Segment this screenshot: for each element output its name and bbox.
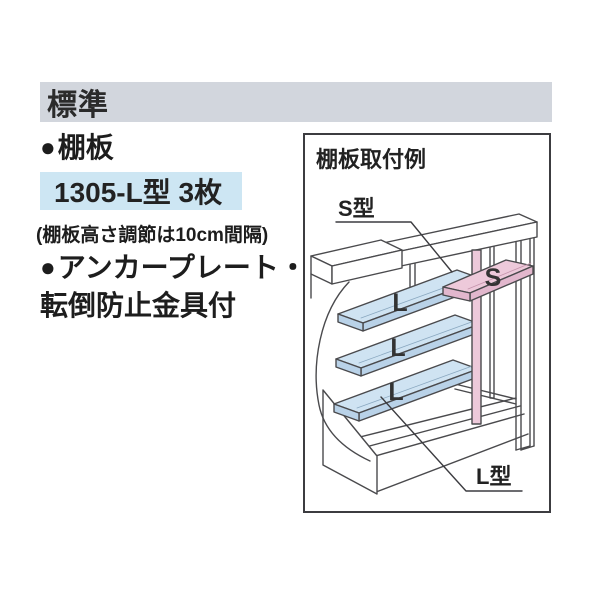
shelf-spec-highlight: 1305-L型 3枚	[40, 172, 242, 210]
shelf-note: (棚板高さ調節は10cm間隔)	[36, 220, 268, 247]
anchor-line1: アンカープレート・	[58, 251, 307, 285]
section-header-bar: 標準	[40, 82, 552, 122]
shelf-title: 棚板	[58, 131, 114, 165]
shelf-spec-line: ● 棚板	[40, 131, 114, 165]
shelf-letter-l3: L	[388, 378, 403, 406]
product-spec-image: 標準 ● 棚板 1305-L型 3枚 (棚板高さ調節は10cm間隔) ● アンカ…	[0, 0, 600, 600]
shelf-letter-l1: L	[392, 289, 407, 317]
bullet-icon: ●	[40, 252, 56, 283]
shelf-spec: 1305-L型 3枚	[40, 171, 222, 211]
bullet-icon: ●	[40, 132, 56, 163]
shelf-letter-s: S	[485, 264, 502, 292]
section-title: 標準	[40, 80, 109, 124]
anchor-spec-line: ● アンカープレート・	[40, 251, 307, 285]
left-eave	[311, 240, 402, 298]
anchor-line2: 転倒防止金具付	[40, 289, 236, 323]
shed-drawing: L L L S	[305, 135, 549, 511]
shelf-letter-l2: L	[390, 334, 405, 362]
